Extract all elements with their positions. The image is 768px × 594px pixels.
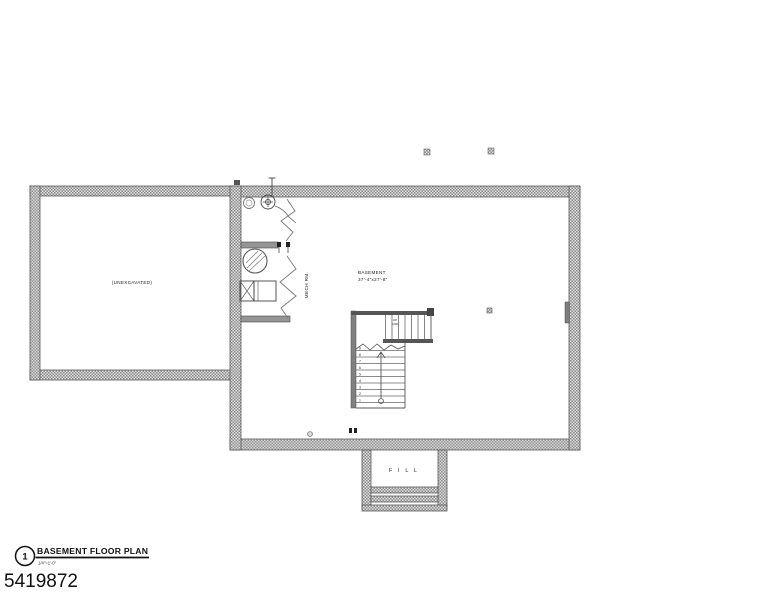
riser-number: 5 [359, 373, 361, 377]
lower-run-treads [356, 351, 405, 403]
door-jamb-right [286, 242, 290, 247]
stair-mid-rail [383, 339, 433, 343]
riser-number: 3 [359, 386, 361, 390]
water-heater-icon [243, 249, 267, 273]
top-wall-post [234, 180, 240, 185]
bottom-wall-tick-2 [354, 428, 357, 433]
areaway-step-3 [362, 505, 447, 511]
floor-plan-sheet: (UNEXCAVATED) BASEMENT 37'-4"x27'-8" [0, 0, 768, 594]
lally-column-icon [487, 308, 492, 313]
areaway-step-1 [371, 487, 438, 493]
door-jamb-left [277, 242, 281, 247]
sheet-id: 5419872 [4, 571, 78, 592]
fill-areaway: F I L L [362, 450, 447, 511]
basement-label: BASEMENT [358, 270, 386, 275]
detail-number: 1 [22, 552, 28, 563]
stair-note-line2: 14R [392, 322, 398, 326]
bottom-wall-tick-1 [349, 428, 352, 433]
unexcavated-left-wall [30, 186, 40, 380]
stair-top-rail [351, 311, 433, 315]
areaway-left-wall [362, 450, 371, 508]
basement-top-wall [230, 186, 580, 197]
column-marker-icon [488, 148, 494, 154]
stair-left-wall [351, 311, 356, 408]
riser-number: 7 [359, 360, 361, 364]
fill-label: F I L L [389, 468, 419, 474]
floor-drain-icon [244, 198, 255, 209]
riser-number: 1 [359, 399, 361, 403]
folding-door-lower [280, 256, 296, 318]
basement-bottom-wall [230, 439, 580, 450]
floor-drain-marker-icon [308, 432, 313, 437]
riser-number: 6 [359, 366, 361, 370]
mech-room-label: MECH RM. [304, 272, 309, 298]
riser-number: 2 [359, 392, 361, 396]
unexcavated-bottom-wall [30, 370, 241, 380]
areaway-right-wall [438, 450, 447, 508]
mech-room: MECH RM. [240, 195, 309, 322]
basement-dimensions: 37'-4"x27'-8" [358, 277, 388, 282]
unexcavated-top-wall [30, 186, 241, 196]
unexcavated-room: (UNEXCAVATED) [30, 186, 241, 380]
right-wall-pilaster [565, 302, 570, 323]
stairs: UP 14R 9 8 7 6 5 4 3 2 1 [351, 308, 434, 408]
column-marker-icon [424, 149, 430, 155]
upper-run-treads [386, 315, 425, 339]
drawing-scale: 1/4"=1'-0" [38, 561, 57, 566]
basement-left-wall [230, 186, 241, 450]
basement-floor-plan-drawing: (UNEXCAVATED) BASEMENT 37'-4"x27'-8" [0, 0, 768, 594]
riser-number: 4 [359, 379, 361, 383]
mech-interior-wall [241, 242, 278, 248]
air-handler-icon [254, 281, 276, 301]
areaway-step-2 [371, 496, 438, 502]
water-heater-hatch-3 [246, 251, 258, 263]
drawing-title: BASEMENT FLOOR PLAN [37, 546, 148, 556]
stair-top-post [427, 308, 434, 316]
title-block: 1 BASEMENT FLOOR PLAN 1/4"=1'-0" [16, 546, 150, 566]
mech-bottom-wall [241, 316, 290, 322]
riser-numbers: 9 8 7 6 5 4 3 2 1 [359, 347, 361, 403]
riser-number: 8 [359, 353, 361, 357]
basement-right-wall [569, 186, 580, 450]
stair-break-line [356, 344, 405, 350]
unexcavated-label: (UNEXCAVATED) [112, 280, 153, 285]
floor-drain-inner [246, 200, 252, 206]
